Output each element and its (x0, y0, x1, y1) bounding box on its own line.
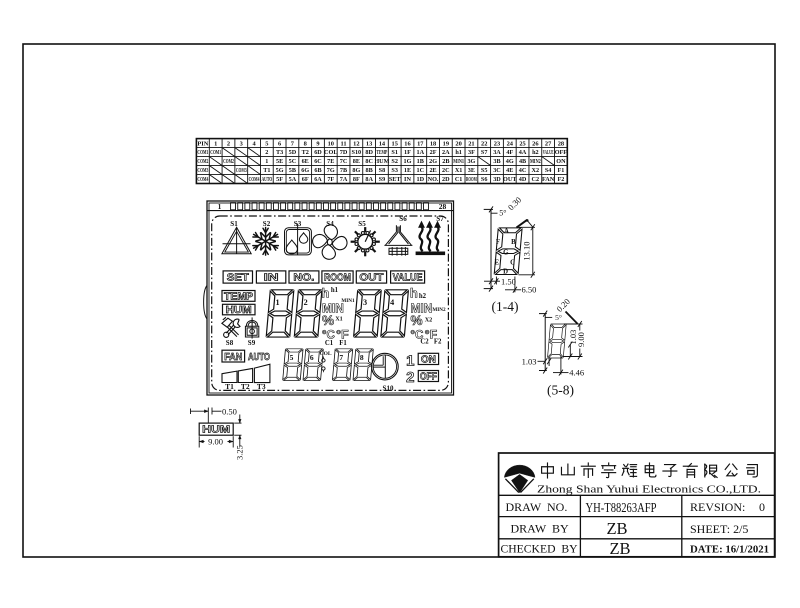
svg-text:7B: 7B (340, 167, 347, 174)
svg-text:2E: 2E (429, 167, 436, 174)
svg-text:S4: S4 (545, 167, 552, 174)
svg-text:1: 1 (218, 202, 222, 211)
svg-text:C2: C2 (532, 176, 540, 183)
svg-text:2D: 2D (442, 176, 450, 183)
svg-text:8D: 8D (365, 149, 373, 156)
svg-text:C1: C1 (325, 340, 334, 347)
svg-text:7E: 7E (327, 158, 334, 165)
svg-text:1F: 1F (404, 149, 411, 156)
svg-text:2C: 2C (442, 167, 450, 174)
svg-text:13: 13 (366, 140, 372, 147)
svg-text:OUT: OUT (503, 176, 517, 183)
svg-text:4E: 4E (506, 167, 513, 174)
svg-text:F2: F2 (557, 176, 564, 183)
svg-text:AUTO: AUTO (248, 352, 270, 363)
svg-text:3: 3 (240, 140, 243, 147)
svg-text:8B: 8B (366, 167, 373, 174)
svg-text:7F: 7F (327, 176, 334, 183)
svg-text:2B: 2B (442, 158, 449, 165)
svg-text:PIN: PIN (197, 140, 208, 147)
svg-text:DRAW NO.: DRAW NO. (506, 500, 568, 514)
svg-text:16: 16 (404, 140, 411, 147)
svg-text:S10: S10 (383, 385, 394, 393)
svg-text:24: 24 (507, 140, 514, 147)
svg-text:S10: S10 (352, 149, 362, 156)
svg-text:5: 5 (290, 353, 294, 362)
svg-text:1.03: 1.03 (522, 356, 537, 366)
svg-text:HUM: HUM (202, 424, 230, 436)
svg-text:9.00: 9.00 (576, 332, 586, 347)
svg-text:NO.: NO. (293, 272, 314, 284)
svg-text:14: 14 (379, 140, 386, 147)
svg-text:COL: COL (324, 149, 337, 156)
svg-text:8: 8 (360, 353, 364, 362)
svg-text:S3: S3 (294, 220, 302, 228)
svg-text:S5: S5 (358, 220, 366, 228)
svg-text:OUT: OUT (359, 272, 384, 284)
svg-text:19: 19 (443, 140, 449, 147)
svg-text:X2: X2 (425, 317, 433, 324)
svg-text:h: h (321, 285, 329, 300)
svg-text:SET: SET (389, 176, 402, 183)
svg-text:S8: S8 (226, 339, 234, 347)
svg-text:T2: T2 (302, 149, 309, 156)
svg-text:1G: 1G (404, 158, 412, 165)
svg-text:%: % (410, 313, 422, 328)
svg-text:C: C (510, 260, 515, 267)
svg-text:7G: 7G (327, 167, 335, 174)
svg-text:8: 8 (304, 140, 307, 147)
svg-text:4: 4 (390, 298, 394, 307)
svg-text:(1-4): (1-4) (492, 299, 519, 314)
svg-text:F1: F1 (339, 340, 347, 347)
svg-text:FAN: FAN (224, 352, 242, 363)
svg-text:E: E (495, 260, 500, 267)
svg-text:COM1: COM1 (210, 149, 221, 156)
svg-text:5G: 5G (276, 167, 284, 174)
svg-text:MIN2: MIN2 (530, 158, 541, 165)
svg-text:S7: S7 (481, 149, 488, 156)
svg-text:0: 0 (759, 500, 765, 514)
svg-text:COM1: COM1 (197, 149, 208, 156)
svg-text:h2: h2 (419, 293, 427, 300)
svg-text:21: 21 (468, 140, 474, 147)
svg-text:5E: 5E (276, 158, 283, 165)
svg-text:G: G (503, 249, 509, 256)
svg-text:22: 22 (481, 140, 487, 147)
svg-text:8F: 8F (353, 176, 360, 183)
svg-text:TEMP: TEMP (377, 149, 388, 156)
svg-text:4B: 4B (519, 158, 526, 165)
svg-text:2: 2 (304, 298, 308, 307)
svg-text:X1: X1 (455, 167, 463, 174)
svg-text:4F: 4F (506, 149, 513, 156)
svg-text:3F: 3F (468, 149, 475, 156)
svg-text:NO.: NO. (428, 176, 439, 183)
svg-text:(5-8): (5-8) (547, 383, 574, 398)
svg-text:2: 2 (265, 149, 268, 156)
svg-text:7D: 7D (340, 149, 348, 156)
svg-text:MIN1: MIN1 (453, 158, 464, 165)
svg-text:2: 2 (227, 140, 230, 147)
svg-text:MIN2: MIN2 (432, 307, 446, 313)
svg-text:F2: F2 (434, 339, 442, 346)
svg-text:F1: F1 (557, 167, 564, 174)
svg-text:S3: S3 (391, 167, 398, 174)
svg-text:17: 17 (417, 140, 424, 147)
svg-text:6.50: 6.50 (522, 285, 537, 295)
svg-text:5D: 5D (289, 149, 297, 156)
svg-text:D: D (503, 268, 508, 275)
svg-text:TEMP: TEMP (224, 291, 253, 302)
svg-text:S9: S9 (248, 339, 256, 347)
svg-text:8G: 8G (352, 167, 360, 174)
svg-text:6: 6 (310, 353, 314, 362)
svg-text:3: 3 (363, 298, 367, 307)
svg-text:8E: 8E (353, 158, 360, 165)
svg-text:2F: 2F (430, 149, 437, 156)
svg-text:23: 23 (494, 140, 500, 147)
svg-text:ZB: ZB (609, 539, 630, 558)
svg-text:OFF: OFF (555, 149, 568, 156)
svg-text:28: 28 (439, 202, 447, 211)
svg-text:DATE: 16/1/2021: DATE: 16/1/2021 (690, 544, 769, 556)
svg-text:6B: 6B (314, 167, 321, 174)
svg-text:1C: 1C (416, 167, 424, 174)
svg-text:25: 25 (519, 140, 525, 147)
svg-text:6G: 6G (301, 167, 309, 174)
svg-text:REVSION:: REVSION: (690, 500, 745, 514)
svg-text:DRAW BY: DRAW BY (511, 521, 569, 535)
svg-text:3B: 3B (493, 158, 500, 165)
svg-text:VALUE: VALUE (393, 272, 423, 284)
svg-text:7: 7 (339, 353, 343, 362)
svg-text:13.10: 13.10 (522, 241, 532, 260)
svg-text:9: 9 (316, 140, 319, 147)
svg-text:4C: 4C (519, 167, 527, 174)
svg-text:ZB: ZB (606, 519, 627, 538)
svg-text:IN: IN (264, 272, 279, 284)
svg-text:S9: S9 (379, 176, 386, 183)
svg-text:ON: ON (556, 158, 566, 165)
svg-text:T3: T3 (276, 149, 283, 156)
svg-text:S6: S6 (481, 176, 488, 183)
svg-text:7A: 7A (340, 176, 348, 183)
svg-text:5F: 5F (276, 176, 283, 183)
svg-text:S8: S8 (379, 167, 386, 174)
svg-text:4.46: 4.46 (569, 367, 584, 377)
svg-text:12: 12 (353, 140, 359, 147)
svg-text:5: 5 (265, 140, 268, 147)
svg-text:11: 11 (341, 140, 347, 147)
svg-text:COM4: COM4 (249, 176, 260, 183)
svg-text:AUTO: AUTO (261, 176, 272, 183)
svg-text:2A: 2A (442, 149, 450, 156)
svg-text:h: h (410, 285, 418, 300)
svg-text:S2: S2 (263, 220, 271, 228)
svg-text:%: % (322, 313, 334, 328)
svg-text:T1: T1 (225, 382, 234, 391)
svg-text:ROOM: ROOM (466, 176, 477, 183)
svg-text:SET: SET (227, 272, 250, 284)
svg-text:COM2: COM2 (223, 158, 234, 165)
svg-text:8C: 8C (365, 158, 373, 165)
svg-text:FAN: FAN (542, 176, 555, 183)
svg-text:X1: X1 (335, 315, 343, 322)
svg-text:3G: 3G (467, 158, 475, 165)
svg-text:2: 2 (406, 369, 414, 386)
svg-text:T2: T2 (241, 382, 250, 391)
svg-text:MIN1: MIN1 (341, 298, 355, 304)
svg-text:1B: 1B (417, 158, 424, 165)
svg-text:1.50: 1.50 (501, 276, 516, 286)
svg-text:COM3: COM3 (236, 167, 247, 174)
svg-text:5C: 5C (289, 158, 297, 165)
svg-text:VALUE: VALUE (543, 149, 554, 156)
svg-text:4G: 4G (506, 158, 514, 165)
svg-text:S5: S5 (481, 167, 488, 174)
svg-text:HUM: HUM (226, 305, 252, 316)
svg-text:1D: 1D (416, 176, 424, 183)
svg-text:1: 1 (214, 140, 217, 147)
svg-text:COM4: COM4 (197, 176, 208, 183)
svg-text:15: 15 (392, 140, 398, 147)
svg-text:ROOM: ROOM (324, 272, 351, 284)
svg-text:Zhong Shan Yuhui Electronics C: Zhong Shan Yuhui Electronics CO.,LTD. (537, 485, 761, 496)
svg-text:7C: 7C (340, 158, 348, 165)
svg-text:S2: S2 (391, 158, 398, 165)
svg-text:CHECKED BY: CHECKED BY (501, 542, 578, 556)
svg-text:COM2: COM2 (197, 158, 208, 165)
svg-text:27: 27 (545, 140, 552, 147)
svg-text:3A: 3A (493, 149, 501, 156)
svg-text:5B: 5B (289, 167, 296, 174)
svg-text:S6: S6 (399, 215, 407, 223)
svg-text:5A: 5A (289, 176, 297, 183)
svg-text:HUM: HUM (374, 158, 389, 165)
svg-text:9.00: 9.00 (208, 436, 223, 446)
svg-text:26: 26 (532, 140, 539, 147)
svg-text:S1: S1 (230, 220, 238, 228)
svg-text:COM3: COM3 (197, 167, 208, 174)
svg-text:COL: COL (320, 351, 332, 357)
svg-text:C2: C2 (420, 339, 429, 346)
svg-text:6A: 6A (314, 176, 322, 183)
svg-text:S1: S1 (391, 149, 398, 156)
svg-text:S7: S7 (436, 215, 444, 223)
svg-text:1A: 1A (416, 149, 424, 156)
svg-text:4A: 4A (519, 149, 527, 156)
svg-text:h1: h1 (331, 287, 339, 294)
svg-text:h2: h2 (532, 149, 539, 156)
svg-text:8A: 8A (365, 176, 373, 183)
svg-text:3C: 3C (493, 167, 501, 174)
svg-text:6E: 6E (302, 158, 309, 165)
svg-text:28: 28 (558, 140, 564, 147)
svg-text:5°: 5° (499, 209, 506, 218)
svg-text:18: 18 (430, 140, 436, 147)
svg-text:YH-T88263AFP: YH-T88263AFP (586, 501, 657, 516)
svg-text:OFF: OFF (420, 372, 437, 383)
svg-text:X2: X2 (532, 167, 540, 174)
svg-text:T3: T3 (257, 382, 266, 391)
svg-text:1: 1 (265, 158, 268, 165)
svg-text:B: B (511, 239, 516, 246)
svg-text:3E: 3E (468, 167, 475, 174)
svg-text:ON: ON (421, 355, 436, 366)
svg-text:4D: 4D (519, 176, 527, 183)
svg-text:20: 20 (455, 140, 461, 147)
svg-text:F: F (496, 239, 500, 246)
svg-text:IN: IN (404, 176, 411, 183)
svg-text:1E: 1E (404, 167, 411, 174)
svg-text:C1: C1 (455, 176, 463, 183)
svg-text:6F: 6F (302, 176, 309, 183)
svg-text:S4: S4 (326, 220, 334, 228)
svg-text:10: 10 (328, 140, 334, 147)
svg-text:A: A (504, 228, 509, 235)
svg-text:6D: 6D (314, 149, 322, 156)
svg-text:SHEET: 2/5: SHEET: 2/5 (690, 522, 748, 536)
svg-text:1: 1 (406, 352, 414, 369)
svg-text:0.50: 0.50 (222, 406, 237, 416)
svg-text:T1: T1 (263, 167, 270, 174)
svg-text:h1: h1 (455, 149, 462, 156)
svg-text:3.25: 3.25 (235, 445, 245, 460)
svg-text:2G: 2G (429, 158, 437, 165)
svg-text:3D: 3D (493, 176, 501, 183)
svg-text:6C: 6C (314, 158, 322, 165)
svg-text:1: 1 (276, 298, 280, 307)
